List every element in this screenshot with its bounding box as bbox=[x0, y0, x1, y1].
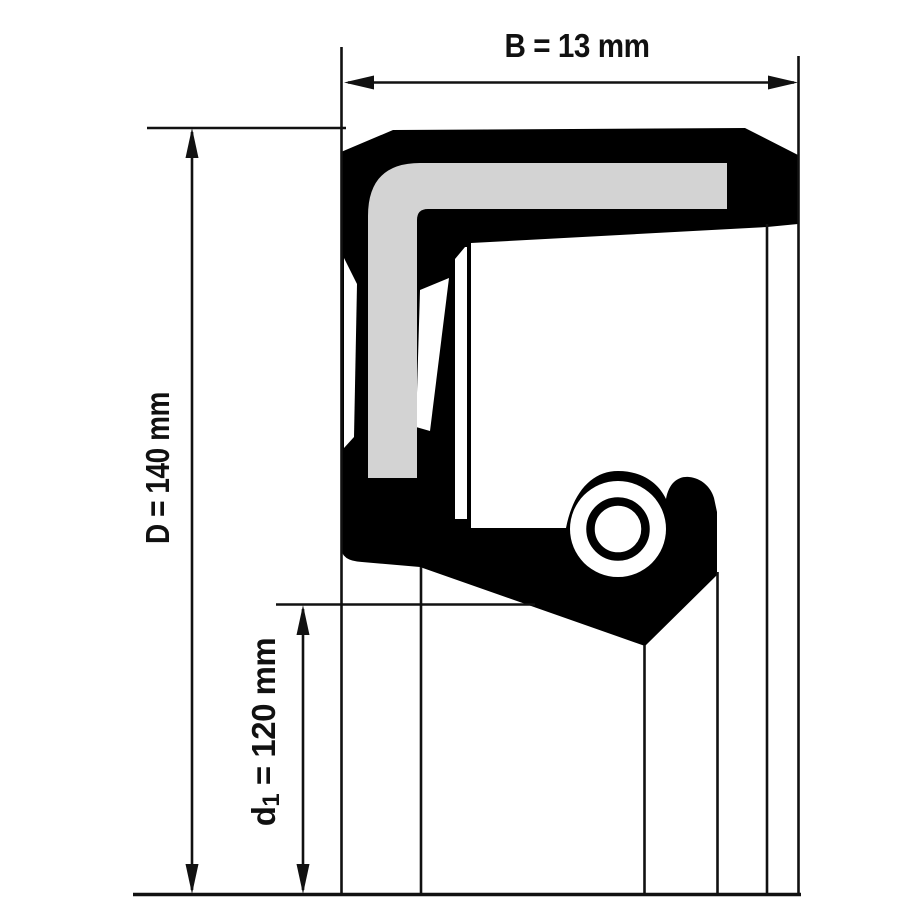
dimension-label-d1-prefix: d bbox=[245, 807, 282, 827]
dimension-label-B: B = 13 mm bbox=[505, 27, 650, 64]
dimension-label-d1: d1 = 120 mm bbox=[245, 638, 285, 827]
profile-groove-bore-side bbox=[455, 247, 467, 519]
arrowhead-B-right bbox=[768, 76, 798, 90]
arrowhead-D-bottom bbox=[186, 864, 199, 894]
dimension-label-d1-subscript: 1 bbox=[258, 794, 285, 807]
arrowhead-B-left bbox=[344, 76, 374, 90]
seal-technical-drawing: B = 13 mm D = 140 mm d1 = 120 mm bbox=[0, 0, 900, 900]
arrowhead-d1-bottom bbox=[297, 864, 310, 894]
arrowhead-d1-top bbox=[297, 605, 310, 635]
garter-spring bbox=[591, 502, 646, 557]
dimension-d1: d1 = 120 mm bbox=[245, 605, 310, 894]
dimension-D: D = 140 mm bbox=[139, 128, 199, 894]
dimension-B: B = 13 mm bbox=[344, 27, 798, 90]
arrowhead-D-top bbox=[186, 128, 199, 158]
dimension-label-d1-rest: = 120 mm bbox=[245, 638, 282, 794]
dimension-label-D: D = 140 mm bbox=[139, 392, 176, 544]
